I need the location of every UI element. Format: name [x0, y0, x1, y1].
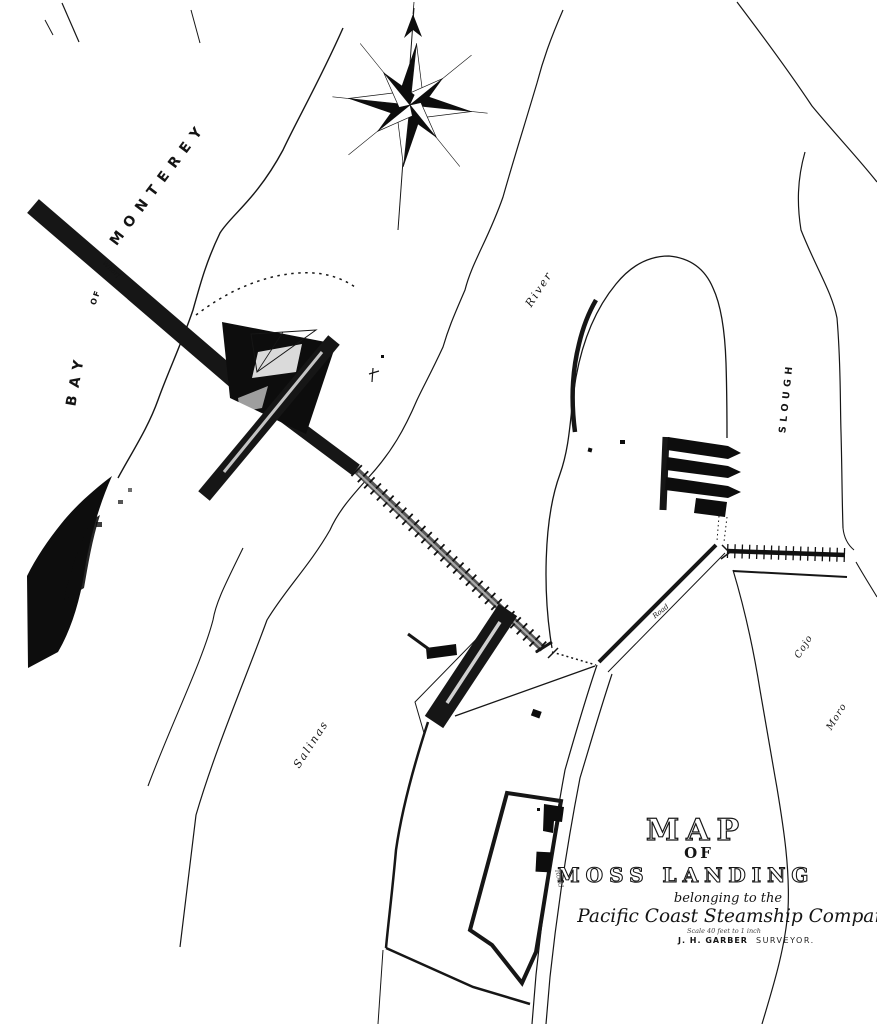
surveyor-title: SURVEYOR. [756, 936, 815, 945]
title-belonging: belonging to the [674, 891, 782, 906]
moss-landing-map: BAY OF MONTEREY River Salinas SLOUGH Coj… [0, 0, 877, 1024]
surveyor-name: J. H. GARBER [677, 936, 748, 945]
title-scale-note: Scale 40 feet to 1 inch [687, 927, 761, 935]
map-page: BAY OF MONTEREY River Salinas SLOUGH Coj… [0, 0, 877, 1024]
title-company: Pacific Coast Steamship Company [576, 906, 877, 927]
title-map: MAP [646, 813, 746, 848]
title-place: MOSS LANDING [558, 863, 815, 887]
title-of: OF [684, 844, 714, 862]
